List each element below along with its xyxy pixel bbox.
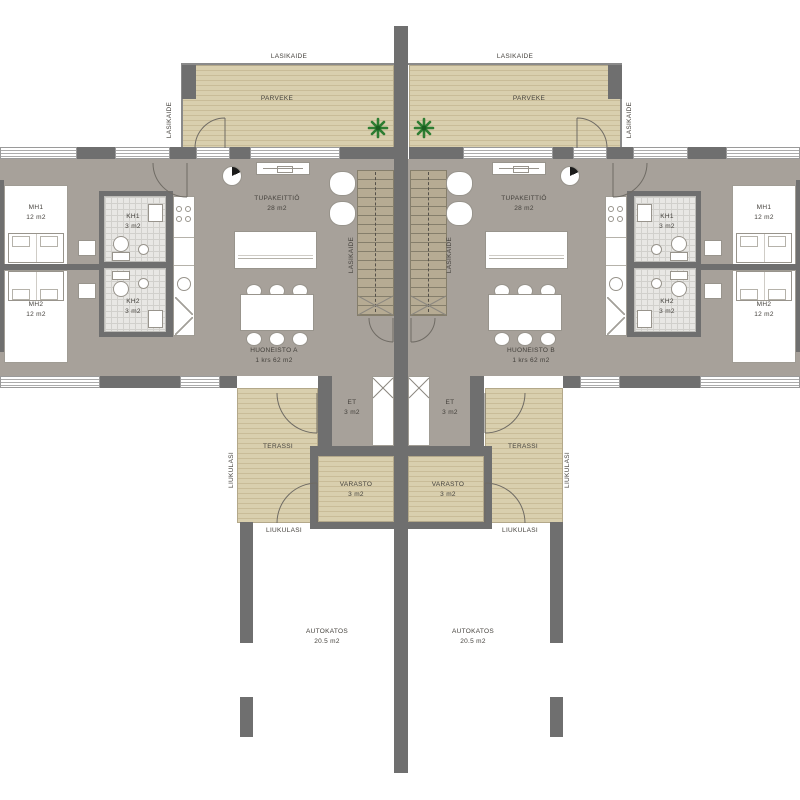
room-label-terrace-a: TERASSI (263, 442, 293, 452)
washer-symbol (148, 310, 163, 328)
wall-segment (0, 264, 101, 270)
nightstand (704, 283, 722, 299)
toilet-tank-symbol (670, 252, 688, 261)
washer-symbol (148, 204, 163, 222)
wall-segment (688, 147, 726, 159)
bed (8, 233, 64, 263)
room-label-kh1-b: KH13 m2 (659, 212, 675, 232)
wall-segment (318, 376, 332, 448)
sofa (485, 231, 568, 269)
railing-label-vertical: LASIKAIDE (625, 102, 635, 138)
window-segment (633, 147, 688, 159)
floor-plan-canvas: LASIKAIDE LASIKAIDE LASIKAIDE LASIKAIDE … (0, 0, 800, 800)
toilet-tank-symbol (670, 271, 688, 280)
wall-segment (340, 147, 394, 159)
room-label-entry-b: ET3 m2 (442, 398, 458, 418)
room-label-mh2-b: MH212 m2 (754, 300, 774, 320)
room-label-carport-b: AUTOKATOS20.5 m2 (452, 627, 494, 647)
wall-segment (100, 376, 180, 388)
window-segment (0, 376, 100, 388)
dining-table (488, 294, 562, 331)
armchair (446, 201, 473, 226)
dining-chair (292, 332, 308, 346)
wall-segment (310, 446, 394, 456)
entry-glass-b (408, 376, 430, 446)
tv-bench (492, 162, 546, 175)
stair-walkline-b (428, 172, 429, 312)
stair-walkline-a (375, 172, 376, 312)
stove-burners-symbol (608, 206, 624, 226)
balcony-deck-a (182, 65, 394, 150)
dining-chair (269, 332, 285, 346)
wall-segment (563, 376, 580, 388)
room-label-carport-a: AUTOKATOS20.5 m2 (306, 627, 348, 647)
armchair (446, 171, 473, 196)
wall-segment (408, 522, 486, 529)
wall-segment (170, 147, 196, 159)
railing-label: LASIKAIDE (271, 52, 307, 62)
room-label-mh1-a: MH112 m2 (26, 203, 46, 223)
wall-segment (316, 522, 394, 529)
wall-segment (699, 264, 800, 270)
sliding-glass-label-vertical: LIUKULASI (227, 452, 237, 488)
tv-bench (256, 162, 310, 175)
wall-segment (608, 65, 622, 99)
room-label-balcony-b: PARVEKE (513, 94, 545, 104)
balcony-deck-b (409, 65, 622, 150)
carport-column (550, 697, 563, 737)
sofa (234, 231, 317, 269)
sliding-glass-label-vertical: LIUKULASI (563, 452, 573, 488)
room-label-kh1-a: KH13 m2 (125, 212, 141, 232)
room-label-terrace-b: TERASSI (508, 442, 538, 452)
carport-column (240, 522, 253, 643)
toilet-symbol (671, 281, 687, 297)
room-label-entry-a: ET3 m2 (344, 398, 360, 418)
wall-segment (408, 446, 492, 456)
window-segment (180, 376, 220, 388)
toilet-tank-symbol (112, 271, 130, 280)
room-label-mh1-b: MH112 m2 (754, 203, 774, 223)
window-segment (115, 147, 170, 159)
basin-symbol (651, 278, 662, 289)
railing-label: LASIKAIDE (497, 52, 533, 62)
washer-symbol (637, 310, 652, 328)
toilet-symbol (113, 236, 129, 252)
carport-column (240, 697, 253, 737)
wall-segment (182, 65, 196, 99)
balcony-door-a (196, 147, 230, 159)
toilet-tank-symbol (112, 252, 130, 261)
toilet-symbol (671, 236, 687, 252)
nightstand (704, 240, 722, 256)
dining-chair (540, 332, 556, 346)
sliding-glass-label: LIUKULASI (266, 526, 302, 536)
terrace-deck-a (237, 388, 318, 523)
wall-segment (310, 446, 318, 529)
entry-glass-a (372, 376, 394, 446)
window-segment (0, 147, 77, 159)
fireplace-stove-symbol (222, 166, 242, 186)
room-label-living-a: TUPAKEITTIÖ28 m2 (254, 194, 299, 214)
dining-chair (517, 332, 533, 346)
stove-burners-symbol (176, 206, 192, 226)
window-segment (250, 147, 340, 159)
apartment-label-b: HUONEISTO B1 krs 62 m2 (507, 346, 555, 366)
bed (736, 233, 792, 263)
nightstand (78, 240, 96, 256)
basin-symbol (651, 244, 662, 255)
wall-segment (409, 147, 463, 159)
stair-railing-label: LASIKAIDE (445, 237, 455, 273)
sliding-glass-label: LIUKULASI (502, 526, 538, 536)
railing-label-vertical: LASIKAIDE (165, 102, 175, 138)
window-segment (726, 147, 800, 159)
room-label-balcony-a: PARVEKE (261, 94, 293, 104)
apartment-label-a: HUONEISTO A1 krs 62 m2 (250, 346, 298, 366)
washer-symbol (637, 204, 652, 222)
nightstand (78, 283, 96, 299)
carport-column (550, 522, 563, 643)
wall-segment (220, 376, 237, 388)
window-segment (580, 376, 620, 388)
window-segment (700, 376, 800, 388)
wall-segment (620, 376, 700, 388)
kitchen-sink-symbol (177, 277, 191, 291)
window-segment (463, 147, 553, 159)
basin-symbol (138, 244, 149, 255)
terrace-deck-b (485, 388, 563, 523)
wall-segment (484, 446, 492, 529)
room-label-storage-b: VARASTO3 m2 (432, 480, 465, 500)
wall-segment (553, 147, 573, 159)
wall-segment (230, 147, 250, 159)
stair-railing-label: LASIKAIDE (347, 237, 357, 273)
party-wall (394, 26, 408, 773)
balcony-door-b (573, 147, 607, 159)
room-label-living-b: TUPAKEITTIÖ28 m2 (501, 194, 546, 214)
basin-symbol (138, 278, 149, 289)
room-label-kh2-b: KH23 m2 (659, 297, 675, 317)
bed (736, 271, 792, 301)
wall-segment (470, 376, 484, 448)
kitchen-sink-symbol (609, 277, 623, 291)
armchair (329, 171, 356, 196)
room-label-kh2-a: KH23 m2 (125, 297, 141, 317)
wall-segment (607, 147, 633, 159)
dining-chair (494, 332, 510, 346)
wall-segment (77, 147, 115, 159)
room-label-mh2-a: MH212 m2 (26, 300, 46, 320)
dining-table (240, 294, 314, 331)
armchair (329, 201, 356, 226)
toilet-symbol (113, 281, 129, 297)
dining-chair (246, 332, 262, 346)
bed (8, 271, 64, 301)
fireplace-stove-symbol (560, 166, 580, 186)
room-label-storage-a: VARASTO3 m2 (340, 480, 373, 500)
